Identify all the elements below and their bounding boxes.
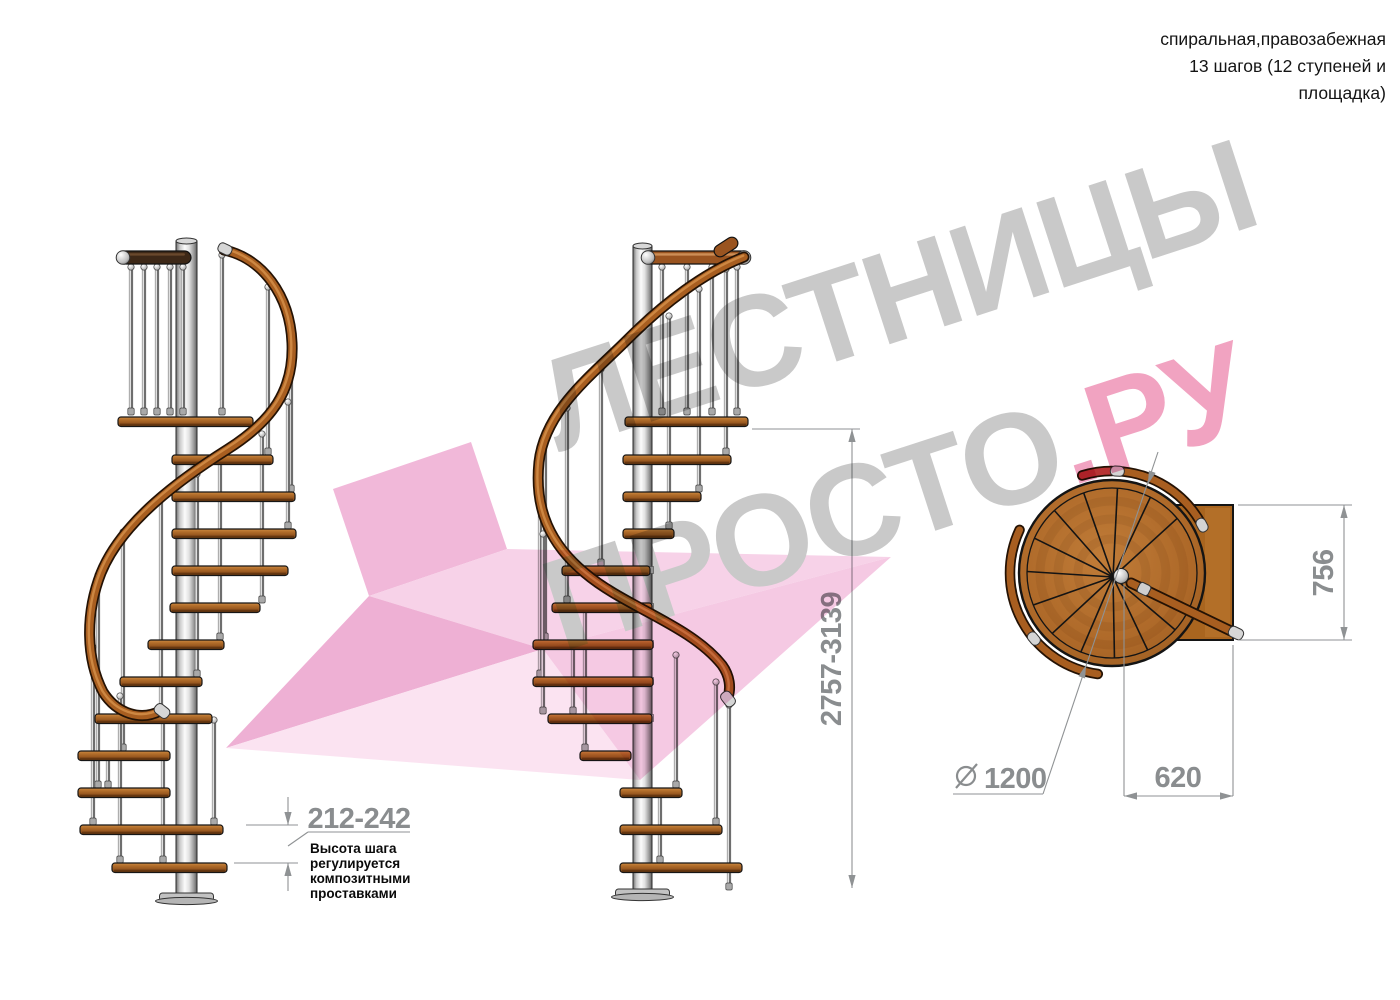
step-height-note: Высота шага регулируется композитными пр…	[310, 841, 410, 901]
rail-joint	[128, 264, 134, 270]
title-line-3: площадка)	[1160, 80, 1386, 107]
drawing-canvas: 212-242 2757-3139 756 620 1200 Высота ша…	[0, 0, 1400, 1000]
rail-joint	[180, 264, 186, 270]
svg-text:композитными: композитными	[310, 871, 410, 886]
svg-text:регулируется: регулируется	[310, 856, 400, 871]
drawing-title: спиральная,правозабежная 13 шагов (12 ст…	[1160, 26, 1386, 107]
rail-joint	[285, 399, 291, 405]
rail-joint	[659, 264, 665, 270]
svg-text:проставками: проставками	[310, 886, 397, 901]
rail-joint	[117, 693, 123, 699]
rail-joint	[154, 264, 160, 270]
title-line-1: спиральная,правозабежная	[1160, 26, 1386, 53]
diameter-symbol-icon	[956, 764, 977, 788]
watermark: ЛЕСТНИЦЫ ПРОСТО.РУ	[226, 111, 1272, 780]
staircase-drawing: 212-242 2757-3139 756 620 1200 Высота ша…	[0, 0, 1400, 1000]
title-line-2: 13 шагов (12 ступеней и	[1160, 53, 1386, 80]
dim-step-height: 212-242	[308, 803, 411, 835]
rail-joint	[141, 264, 147, 270]
left-side-view	[78, 238, 296, 905]
dim-platform-width: 620	[1155, 762, 1202, 794]
dim-platform-depth: 756	[1308, 549, 1340, 596]
rail-joint	[684, 264, 690, 270]
rail-joint	[167, 264, 173, 270]
dim-diameter: 1200	[984, 763, 1047, 795]
svg-text:Высота шага: Высота шага	[310, 841, 397, 856]
top-rail-bar	[116, 251, 191, 265]
